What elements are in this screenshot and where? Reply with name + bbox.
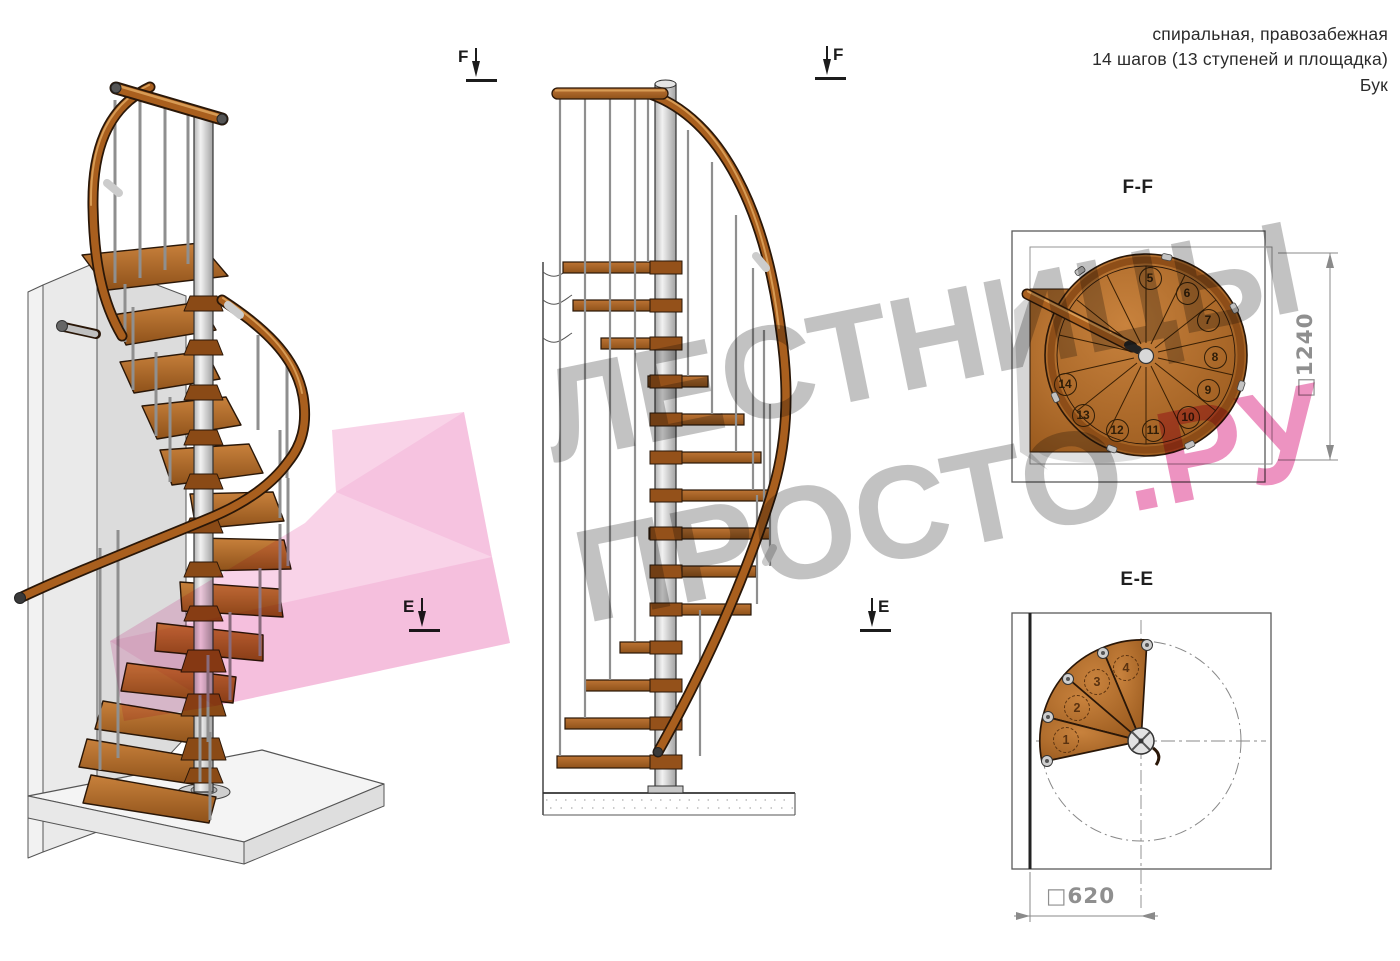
step-number: 1 [1053, 727, 1079, 753]
step-number: 6 [1176, 282, 1199, 305]
dimension-1240: □1240 [1261, 310, 1349, 400]
dimension-1240-value: 1240 [1293, 312, 1318, 376]
section-marker-e-right: E [860, 598, 891, 632]
header-line-type: спиральная, правозабежная [1092, 22, 1388, 47]
header-line-material: Бук [1092, 73, 1388, 98]
step-number: 11 [1142, 419, 1165, 442]
down-arrow-icon [821, 46, 833, 76]
marker-letter: F [833, 46, 843, 63]
dimension-620: □620 [1046, 884, 1115, 909]
step-number: 10 [1177, 406, 1200, 429]
marker-letter: E [878, 598, 889, 615]
step-number: 12 [1106, 419, 1129, 442]
marker-letter: F [458, 48, 468, 65]
ee-section-title: E-E [1057, 569, 1217, 591]
dimension-620-value: 620 [1067, 884, 1115, 909]
drawing-canvas: спиральная, правозабежная 14 шагов (13 с… [0, 0, 1400, 961]
marker-letter: E [403, 598, 414, 615]
down-arrow-icon [470, 48, 482, 78]
ff-section-title: F-F [1058, 177, 1218, 199]
down-arrow-icon [866, 598, 878, 628]
step-number: 2 [1064, 695, 1090, 721]
section-marker-e-left: E [403, 598, 440, 632]
step-number: 9 [1197, 379, 1220, 402]
step-number: 4 [1113, 655, 1139, 681]
step-number: 5 [1139, 267, 1162, 290]
marker-baseline [815, 77, 846, 80]
marker-baseline [860, 629, 891, 632]
marker-baseline [466, 79, 497, 82]
step-number: 8 [1204, 346, 1227, 369]
text-layer: спиральная, правозабежная 14 шагов (13 с… [0, 0, 1400, 961]
marker-baseline [409, 629, 440, 632]
step-number: 13 [1072, 404, 1095, 427]
title-block: спиральная, правозабежная 14 шагов (13 с… [1092, 22, 1388, 98]
section-marker-f-left: F [458, 48, 497, 82]
square-symbol: □ [1046, 884, 1067, 909]
header-line-steps: 14 шагов (13 ступеней и площадка) [1092, 47, 1388, 72]
down-arrow-icon [416, 598, 428, 628]
step-number: 14 [1054, 373, 1077, 396]
step-number: 3 [1084, 669, 1110, 695]
step-number: 7 [1197, 309, 1220, 332]
section-marker-f-right: F [815, 46, 846, 80]
square-symbol: □ [1293, 376, 1318, 397]
